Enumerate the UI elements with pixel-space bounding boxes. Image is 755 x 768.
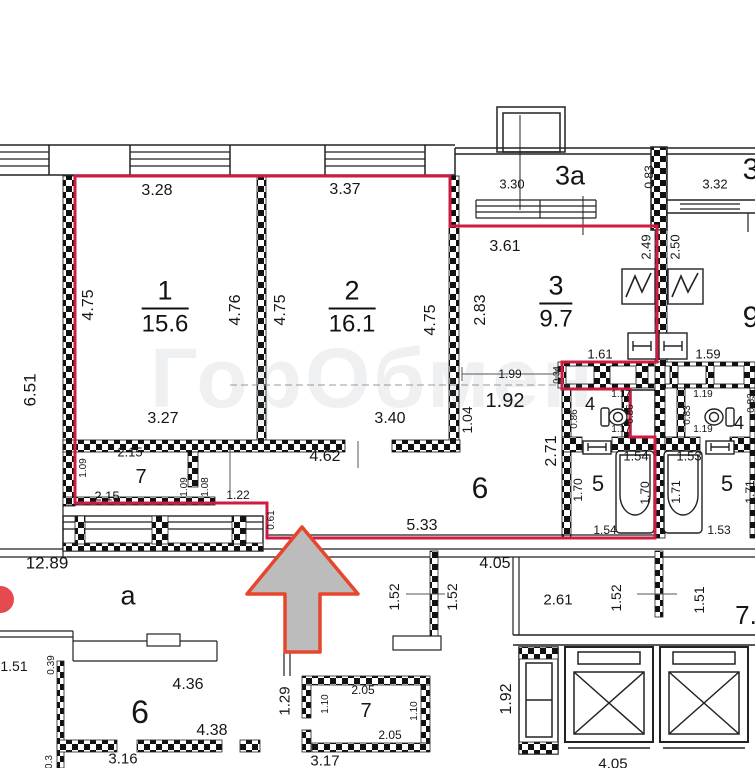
balcony-3a xyxy=(455,107,755,235)
window-band xyxy=(63,516,263,551)
toilet-icon xyxy=(601,408,734,426)
elevator-lobby xyxy=(513,635,755,754)
elevator-1 xyxy=(565,647,653,748)
plan-linework xyxy=(0,0,755,768)
top-exterior-wall xyxy=(0,145,455,175)
lower-room-7 xyxy=(302,676,430,752)
window-symbol xyxy=(476,200,596,218)
floor-plan: ГорОбмен 115.6216.139.7 3.283.373.303a0.… xyxy=(0,0,755,768)
shaft-column xyxy=(519,647,558,754)
lower-walls xyxy=(0,505,755,768)
window-symbol xyxy=(0,152,425,166)
elevator-2 xyxy=(660,647,748,748)
